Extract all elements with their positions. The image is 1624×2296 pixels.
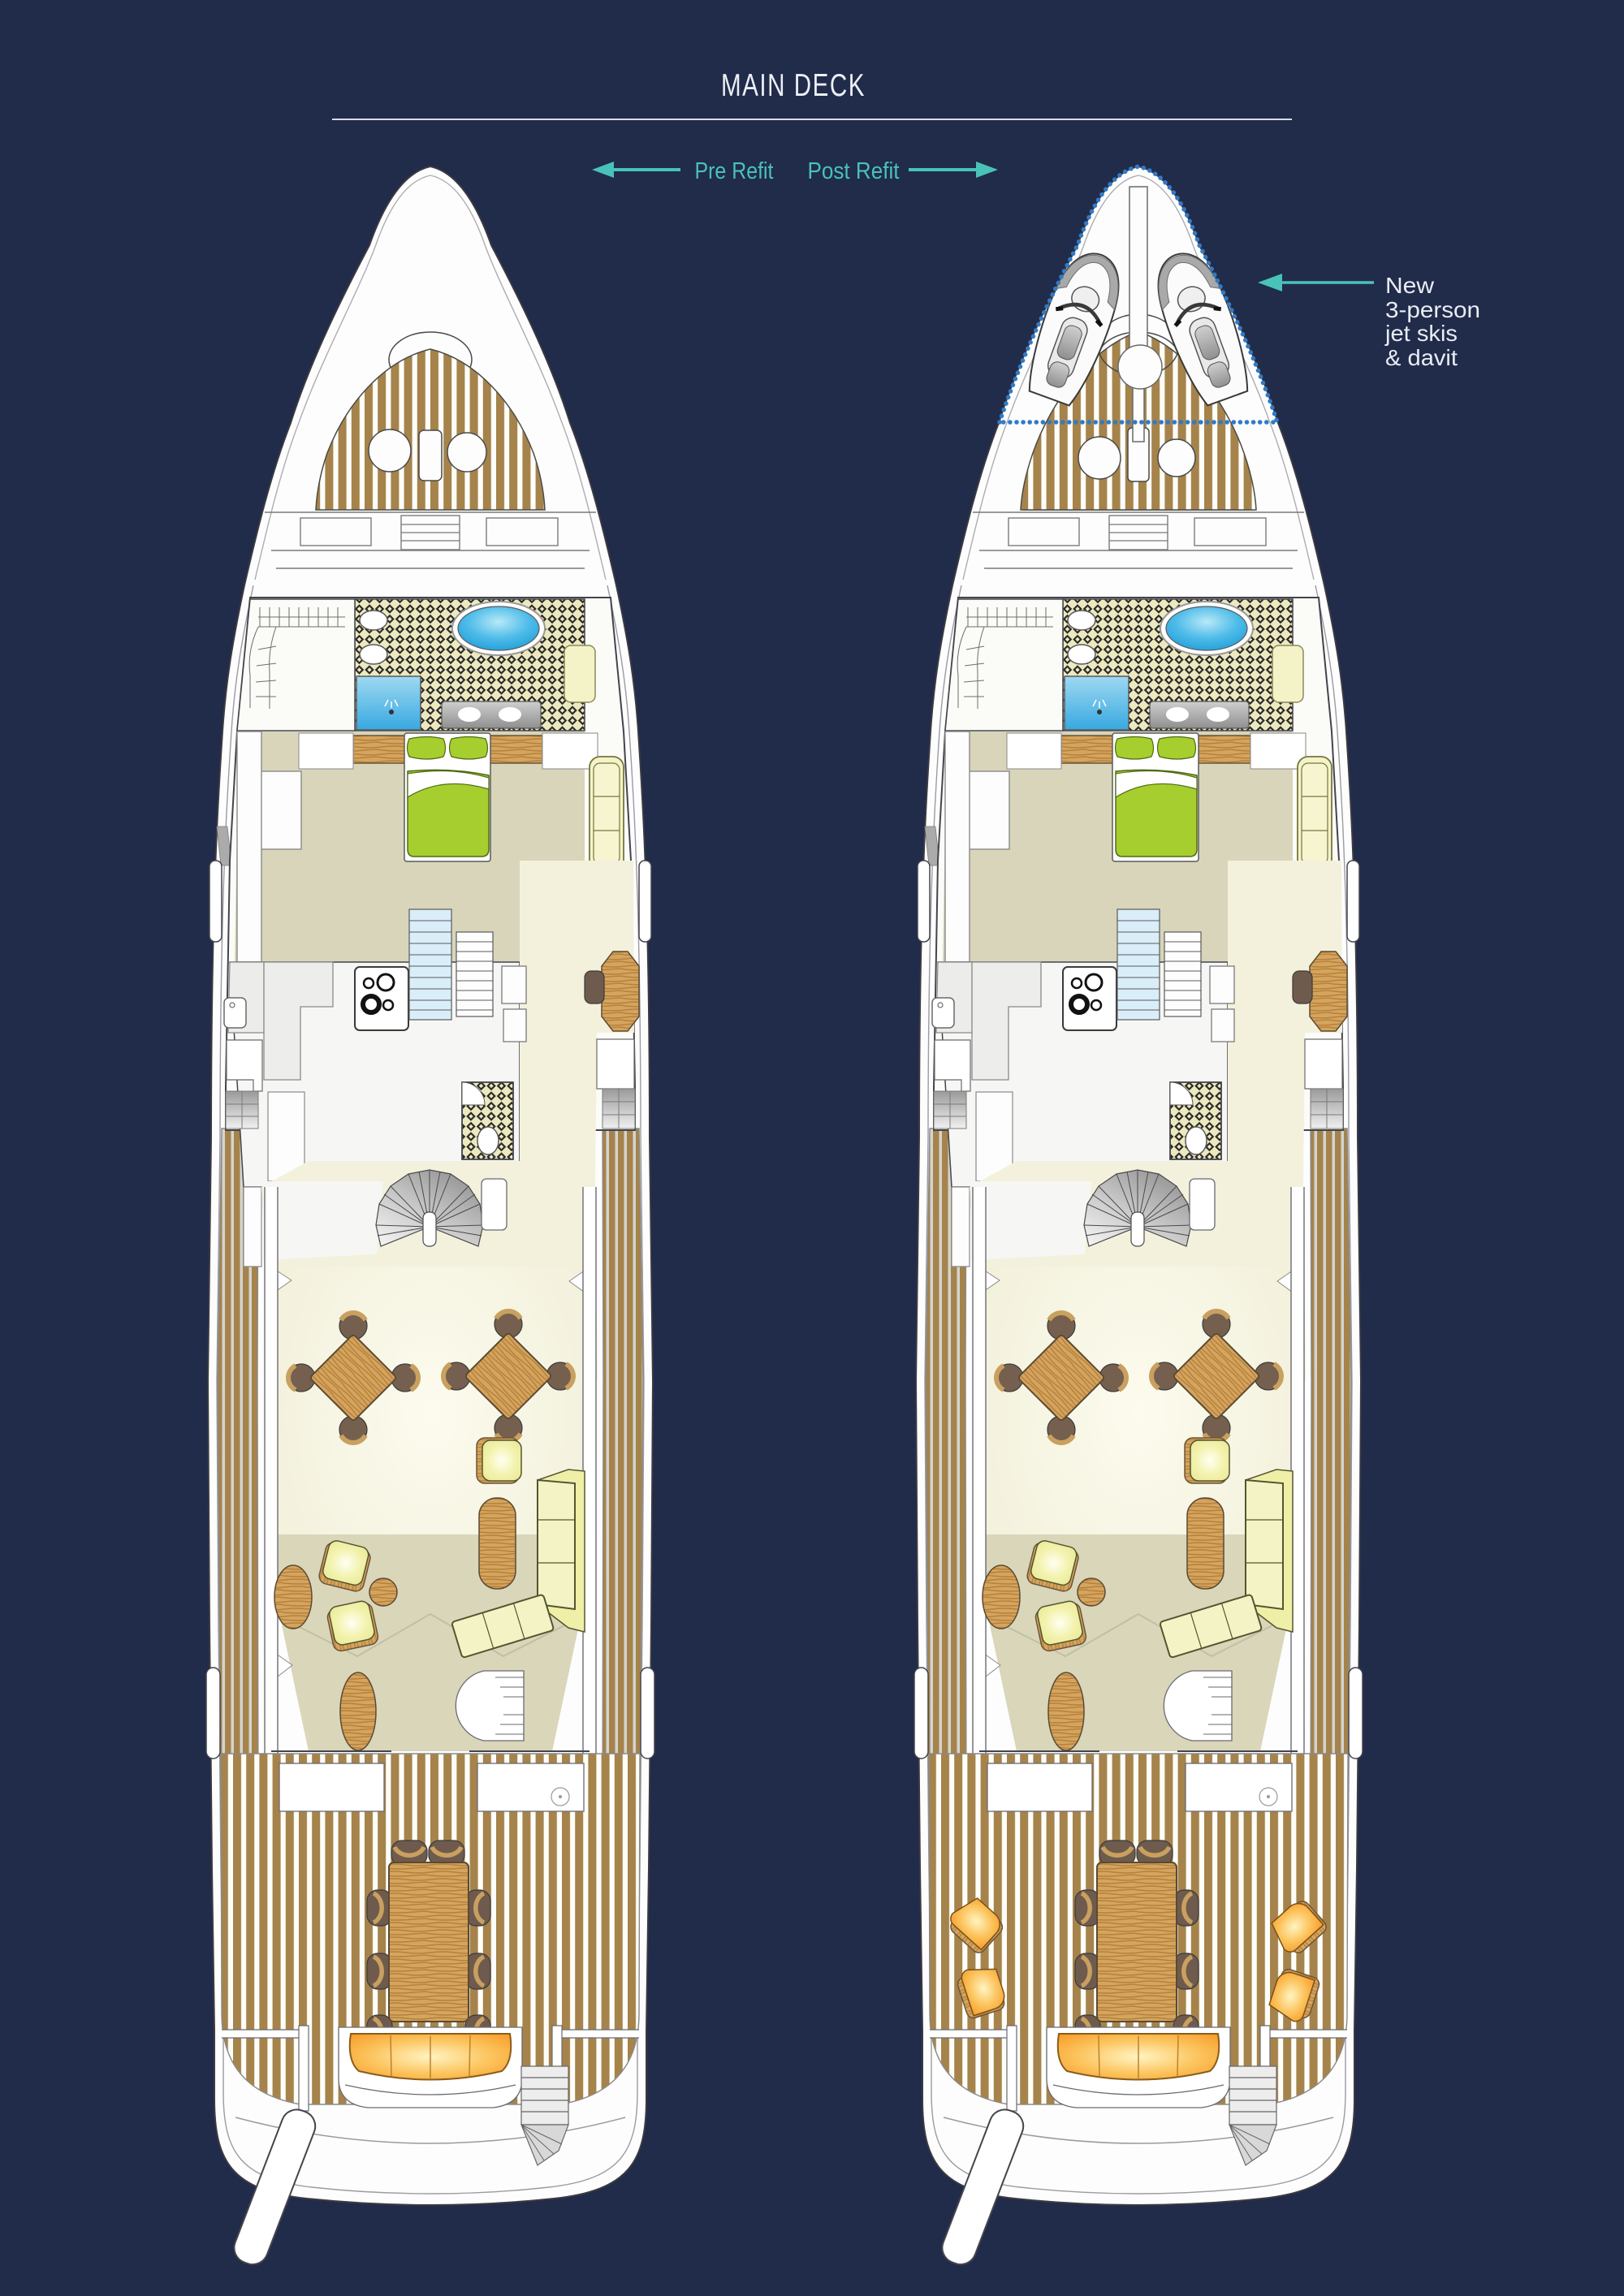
svg-text:Post Refit: Post Refit [808,158,900,184]
svg-text:New: New [1385,273,1435,298]
svg-text:jet skis: jet skis [1384,321,1458,346]
svg-text:Pre Refit: Pre Refit [695,158,774,184]
svg-text:3-person: 3-person [1385,297,1480,322]
svg-text:& davit: & davit [1385,345,1458,370]
svg-text:MAIN DECK: MAIN DECK [721,68,866,103]
